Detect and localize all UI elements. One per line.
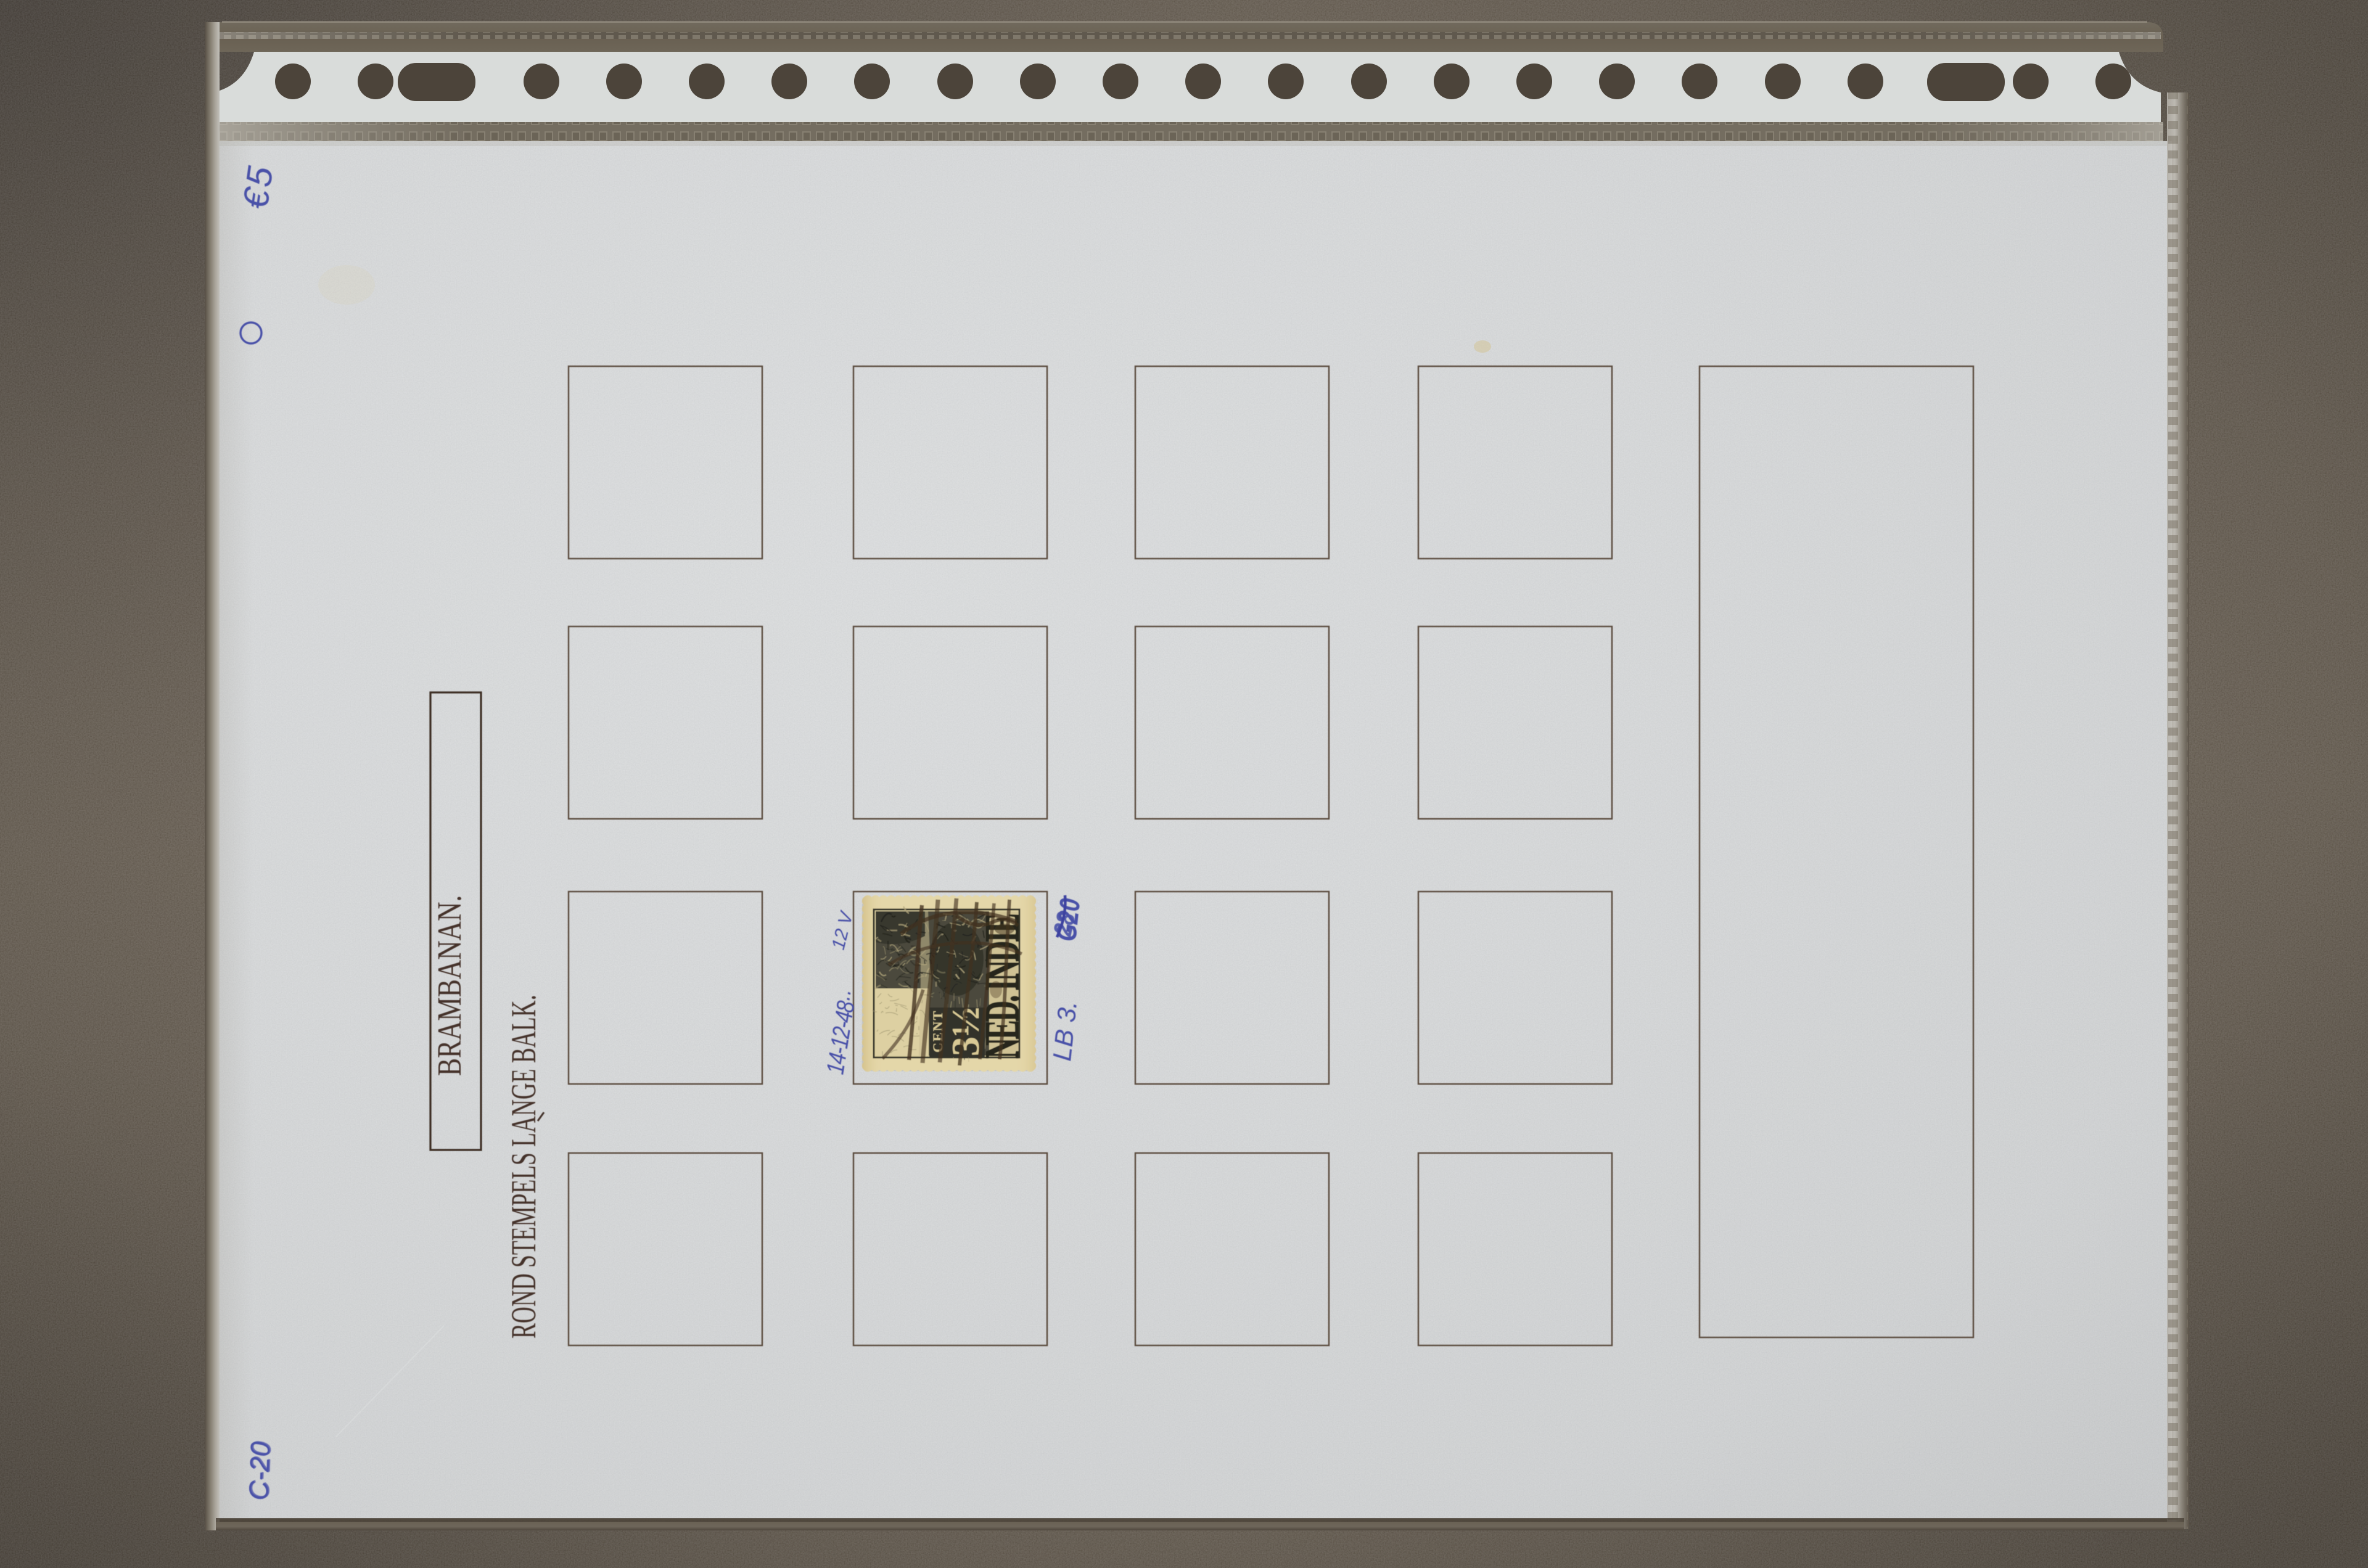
svg-text:C: C [244, 1480, 274, 1501]
svg-text:ROND STEMPELS LANGE BALK.: ROND STEMPELS LANGE BALK. [504, 995, 543, 1339]
svg-text:€5: €5 [236, 162, 281, 211]
svg-text:BRAMBANAN.: BRAMBANAN. [430, 895, 468, 1076]
